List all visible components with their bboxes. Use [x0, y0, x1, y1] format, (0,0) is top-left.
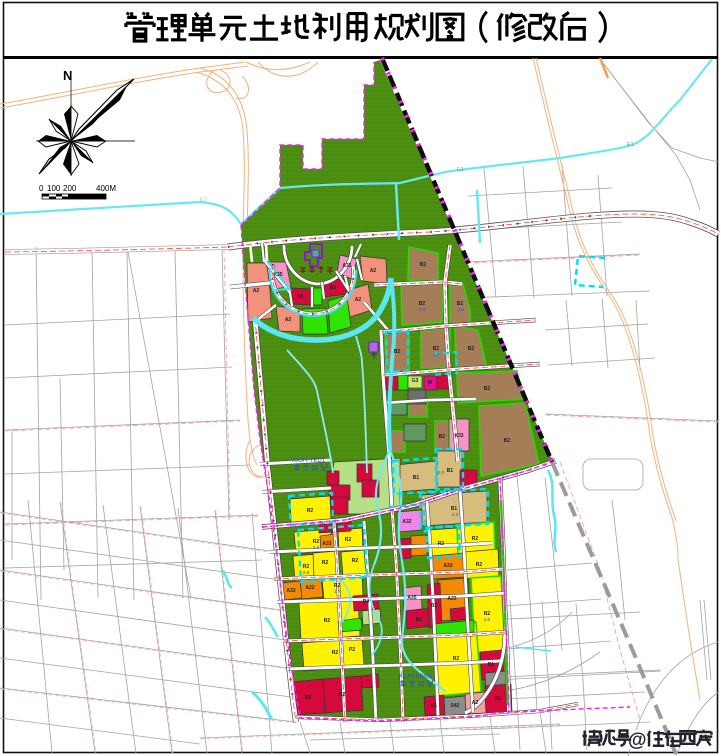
svg-text:XXJH-DW01: XXJH-DW01	[398, 674, 433, 680]
svg-text:K33: K33	[454, 433, 463, 439]
svg-text:400M: 400M	[96, 184, 116, 193]
svg-text:A2: A2	[370, 268, 377, 274]
svg-text:2.0: 2.0	[438, 470, 445, 475]
svg-text:4.0: 4.0	[484, 617, 491, 622]
svg-text:M: M	[428, 380, 432, 386]
svg-text:B1: B1	[413, 475, 420, 481]
svg-text:100: 100	[47, 184, 61, 193]
svg-text:B2: B2	[420, 262, 427, 268]
svg-text:B1: B1	[431, 603, 438, 609]
svg-text:2.9: 2.9	[313, 545, 320, 550]
svg-text:A2: A2	[472, 700, 479, 706]
svg-text:R2: R2	[453, 656, 460, 662]
svg-text:R2: R2	[345, 537, 352, 543]
svg-text:2.9: 2.9	[303, 570, 310, 575]
svg-text:A22: A22	[305, 585, 314, 591]
svg-text:R2: R2	[307, 508, 314, 514]
svg-text:@: @	[628, 730, 647, 751]
svg-text:B2: B2	[439, 434, 446, 440]
svg-text:2.0: 2.0	[458, 307, 465, 312]
svg-text:1.9: 1.9	[334, 589, 341, 594]
svg-text:E1: E1	[200, 197, 207, 203]
svg-text:2.0: 2.0	[452, 512, 459, 517]
svg-text:R2: R2	[339, 692, 346, 698]
svg-text:G3: G3	[412, 378, 419, 384]
svg-text:B2: B2	[394, 349, 401, 355]
svg-text:A2: A2	[285, 317, 292, 323]
svg-text:B2: B2	[504, 438, 511, 444]
svg-text:R2: R2	[324, 618, 331, 624]
svg-text:B3: B3	[330, 285, 337, 291]
svg-text:A33: A33	[443, 563, 452, 569]
svg-text:A35: A35	[342, 263, 351, 269]
svg-text:R2: R2	[332, 650, 339, 656]
svg-text:B4: B4	[363, 599, 370, 605]
svg-text:B1: B1	[416, 617, 423, 623]
svg-text:B2: B2	[468, 346, 475, 352]
svg-text:A33: A33	[286, 588, 295, 594]
svg-text:R2: R2	[322, 560, 329, 566]
svg-text:A33: A33	[322, 541, 331, 547]
svg-text:R2: R2	[476, 562, 483, 568]
svg-text:B1: B1	[447, 468, 454, 474]
svg-text:B1: B1	[495, 696, 502, 702]
svg-text:B2: B2	[305, 695, 312, 701]
svg-text:B1: B1	[488, 662, 495, 668]
svg-text:R2: R2	[438, 541, 445, 547]
svg-text:B2: B2	[484, 386, 491, 392]
svg-text:E1: E1	[457, 167, 464, 173]
svg-text:A33: A33	[447, 596, 456, 602]
svg-text:A2: A2	[253, 288, 260, 294]
svg-text:2.0: 2.0	[433, 352, 440, 357]
svg-text:A32: A32	[402, 519, 411, 525]
svg-text:P2: P2	[349, 647, 355, 653]
svg-text:N: N	[63, 68, 72, 83]
svg-text:200: 200	[63, 184, 77, 193]
svg-text:B3: B3	[297, 294, 304, 300]
svg-text:B1: B1	[431, 703, 438, 709]
svg-text:2.0: 2.0	[419, 307, 426, 312]
svg-text:K35: K35	[273, 272, 282, 278]
svg-text:R2: R2	[352, 558, 359, 564]
svg-text:A35: A35	[407, 595, 416, 601]
svg-text:XXJH-YED1: XXJH-YED1	[292, 458, 326, 464]
svg-text:S42: S42	[451, 703, 460, 709]
svg-text:R2: R2	[472, 536, 479, 542]
svg-text:0: 0	[39, 184, 44, 193]
svg-text:E1: E1	[627, 142, 634, 148]
svg-text:A2: A2	[355, 297, 362, 303]
